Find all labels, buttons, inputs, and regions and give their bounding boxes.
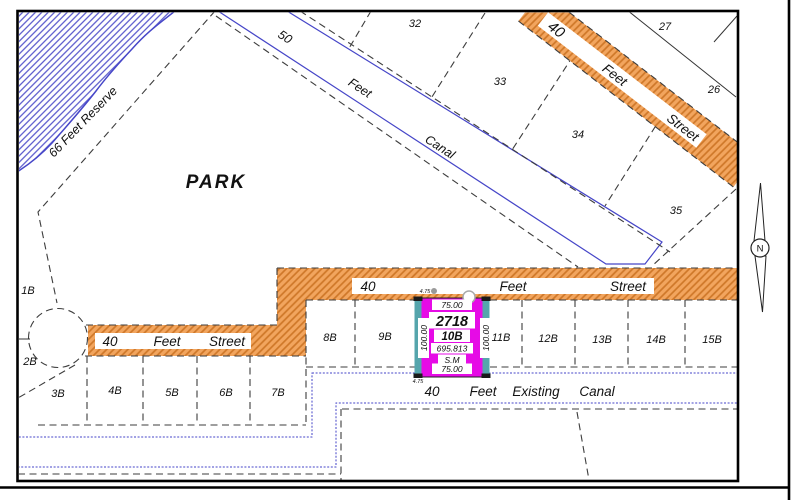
canal-50-left-boundary	[216, 16, 578, 267]
offset-bottom-label: 4.75	[413, 379, 425, 385]
cul-de-sac	[29, 309, 88, 368]
sheet-border	[0, 0, 789, 500]
lot-label-11b: 11B	[492, 332, 511, 344]
street-network: 40 Feet Street 40 Feet Street	[29, 268, 739, 425]
north-needle-upper	[754, 183, 765, 241]
lot-label-27: 27	[658, 21, 672, 33]
lot-label-14b: 14B	[646, 334, 666, 346]
mid-lot-block: 8B 9B 11B 12B 13B 14B 15B	[306, 300, 738, 367]
existing-canal-name-label: Canal	[579, 384, 615, 399]
existing-canal-feet-label: Feet	[469, 384, 497, 399]
depth-right-label: 100.00	[481, 325, 491, 351]
south-lot-split-boundary	[577, 412, 589, 480]
street-end-boundary	[652, 189, 736, 266]
existing-canal-width-label: 40	[424, 384, 440, 399]
vertex-handle-nw[interactable]	[414, 297, 423, 302]
existing-canal-qualifier-label: Existing	[512, 384, 560, 399]
lot-label-32: 32	[409, 18, 421, 30]
lot-label-7b: 7B	[271, 387, 284, 399]
north-arrow: N	[751, 183, 769, 312]
street-diagonal: 40 Feet Street	[518, 0, 756, 266]
lot-label-35: 35	[670, 205, 683, 217]
lot-label-3b: 3B	[51, 388, 64, 400]
snap-marker-dot	[431, 288, 437, 294]
lot-boundary-26-corner	[714, 16, 737, 42]
vertex-handle-sw[interactable]	[414, 374, 423, 379]
depth-left-label: 100.00	[419, 325, 429, 351]
park-label: PARK	[186, 172, 246, 193]
lot-label-33: 33	[494, 76, 507, 88]
street-upper-feet-label: Feet	[499, 279, 527, 294]
lot-boundary-2b-3b	[18, 365, 75, 398]
lot-label-34: 34	[572, 129, 584, 141]
lot-boundary-33-34	[512, 56, 573, 150]
existing-canal-strip	[18, 373, 738, 467]
reserve-hatch	[17, 4, 213, 173]
street-upper-width-label: 40	[360, 279, 376, 294]
lot-label-13b: 13B	[592, 334, 612, 346]
frontage-bottom-label: 75.00	[441, 364, 463, 374]
street-lower-width-label: 40	[102, 334, 118, 349]
street-lower-name-label: Street	[209, 334, 246, 349]
lot-label-12b: 12B	[538, 333, 558, 345]
offset-top-label: 4.75	[420, 289, 432, 295]
reserve-area: 66 Feet Reserve	[17, 4, 213, 173]
lot-label-1b: 1B	[21, 285, 34, 297]
vertex-handle-ne[interactable]	[482, 297, 491, 302]
lot-label-5b: 5B	[165, 387, 178, 399]
existing-canal: 40 Feet Existing Canal	[18, 373, 738, 480]
lot-label-8b: 8B	[323, 332, 336, 344]
lot-label-2b: 2B	[22, 356, 36, 368]
survey-plan-sheet: 66 Feet Reserve PARK 50 Feet Canal 32 33	[0, 0, 800, 500]
street-upper-name-label: Street	[610, 279, 647, 294]
street-lower-feet-label: Feet	[153, 334, 181, 349]
parcel-number-label: 2718	[435, 314, 469, 330]
lot-boundary-32-33	[430, 13, 485, 100]
lot-label-6b: 6B	[219, 387, 232, 399]
cadastral-plan-drawing: 66 Feet Reserve PARK 50 Feet Canal 32 33	[0, 0, 800, 500]
lot-label-26: 26	[707, 84, 721, 96]
area-value-label: 695.813	[437, 344, 468, 354]
vertex-handle-se[interactable]	[482, 374, 491, 379]
north-label: N	[757, 244, 764, 255]
frontage-top-label: 75.00	[441, 300, 463, 310]
lot-label-15b: 15B	[702, 334, 722, 346]
lot-boundary-32-west	[348, 11, 371, 50]
lot-label-4b: 4B	[108, 385, 121, 397]
north-needle-lower	[755, 256, 766, 312]
lot-label-9b: 9B	[378, 331, 391, 343]
selected-lot-number-label: 10B	[441, 331, 462, 343]
selected-lot[interactable]: 4.75 4.75 75.00 2718 10B 695.813 S.M 75.…	[413, 288, 491, 385]
